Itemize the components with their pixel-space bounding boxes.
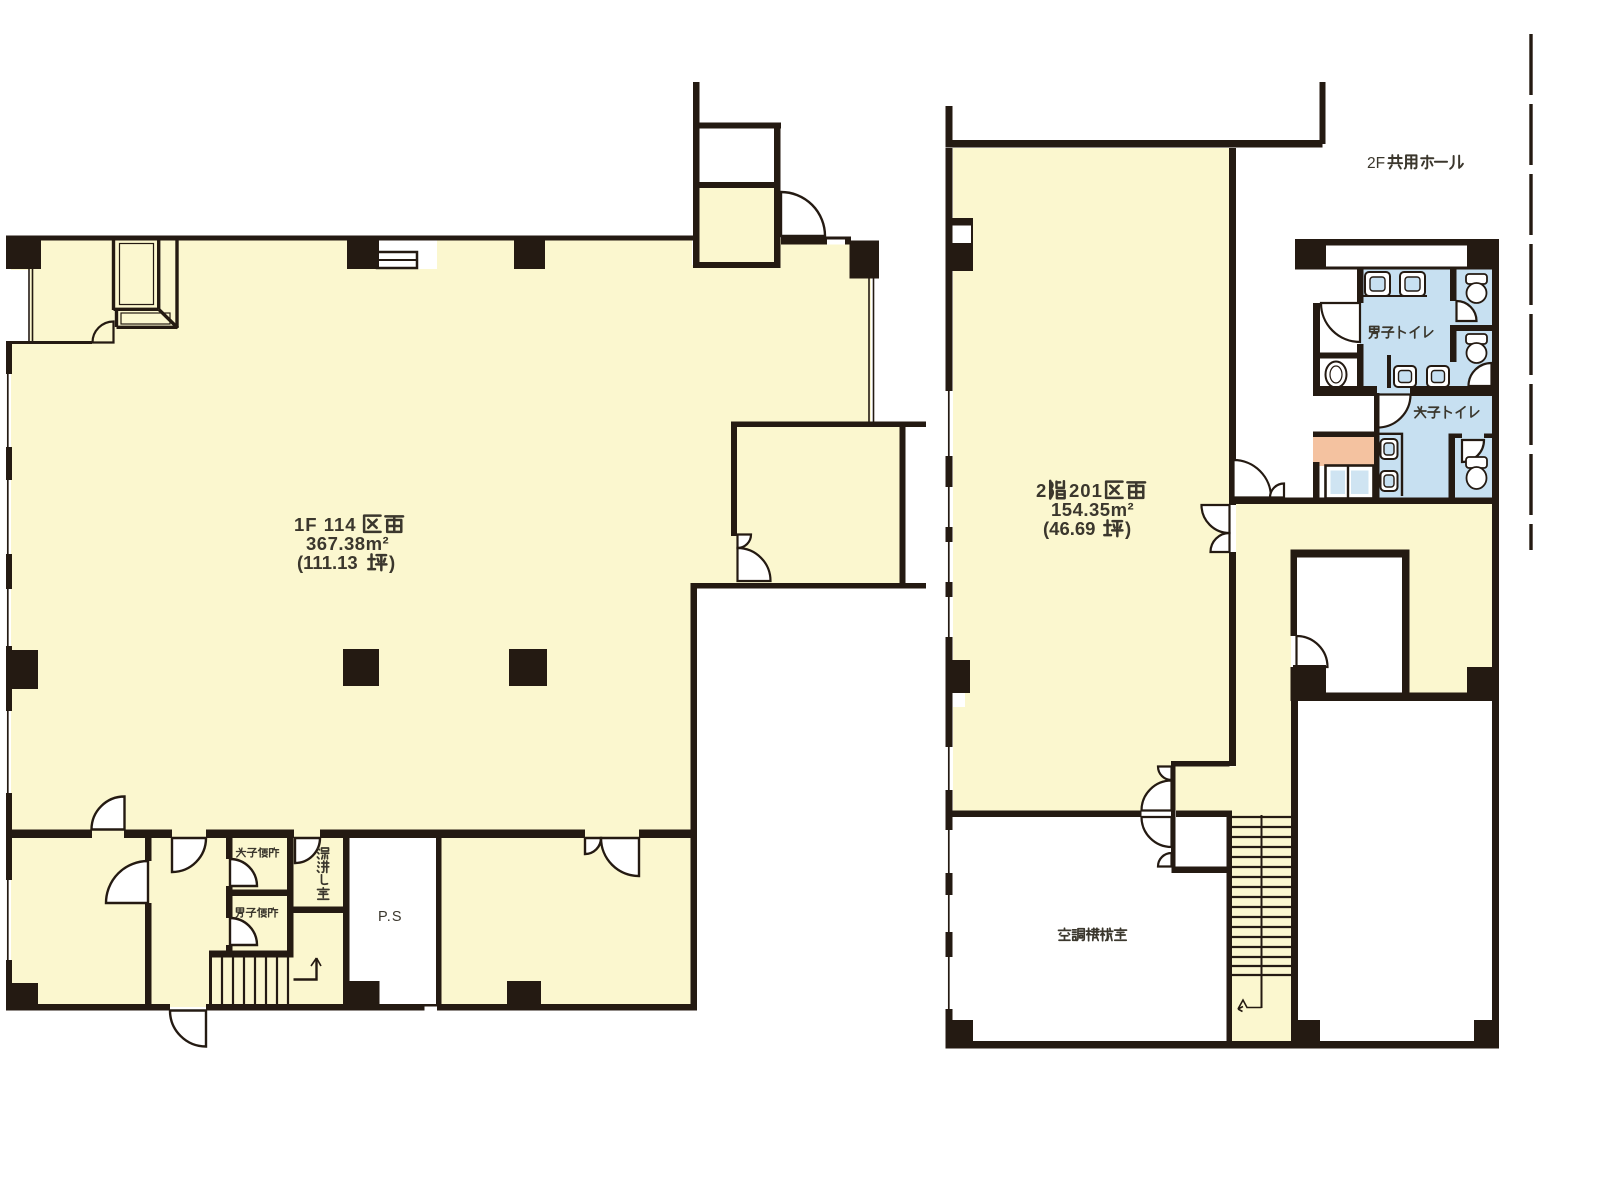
svg-text:154.35m²: 154.35m² (1051, 499, 1134, 520)
svg-text:2F: 2F (1367, 155, 1385, 172)
svg-text:2: 2 (1036, 480, 1046, 501)
svg-text:1F 114: 1F 114 (294, 514, 357, 535)
svg-text:367.38m²: 367.38m² (306, 533, 389, 554)
svg-text:): ) (389, 552, 395, 573)
svg-text:): ) (1125, 518, 1131, 539)
svg-text:201: 201 (1069, 480, 1103, 501)
svg-text:(111.13: (111.13 (297, 552, 358, 573)
svg-text:(46.69: (46.69 (1043, 518, 1095, 539)
svg-text:P.S: P.S (378, 909, 403, 925)
